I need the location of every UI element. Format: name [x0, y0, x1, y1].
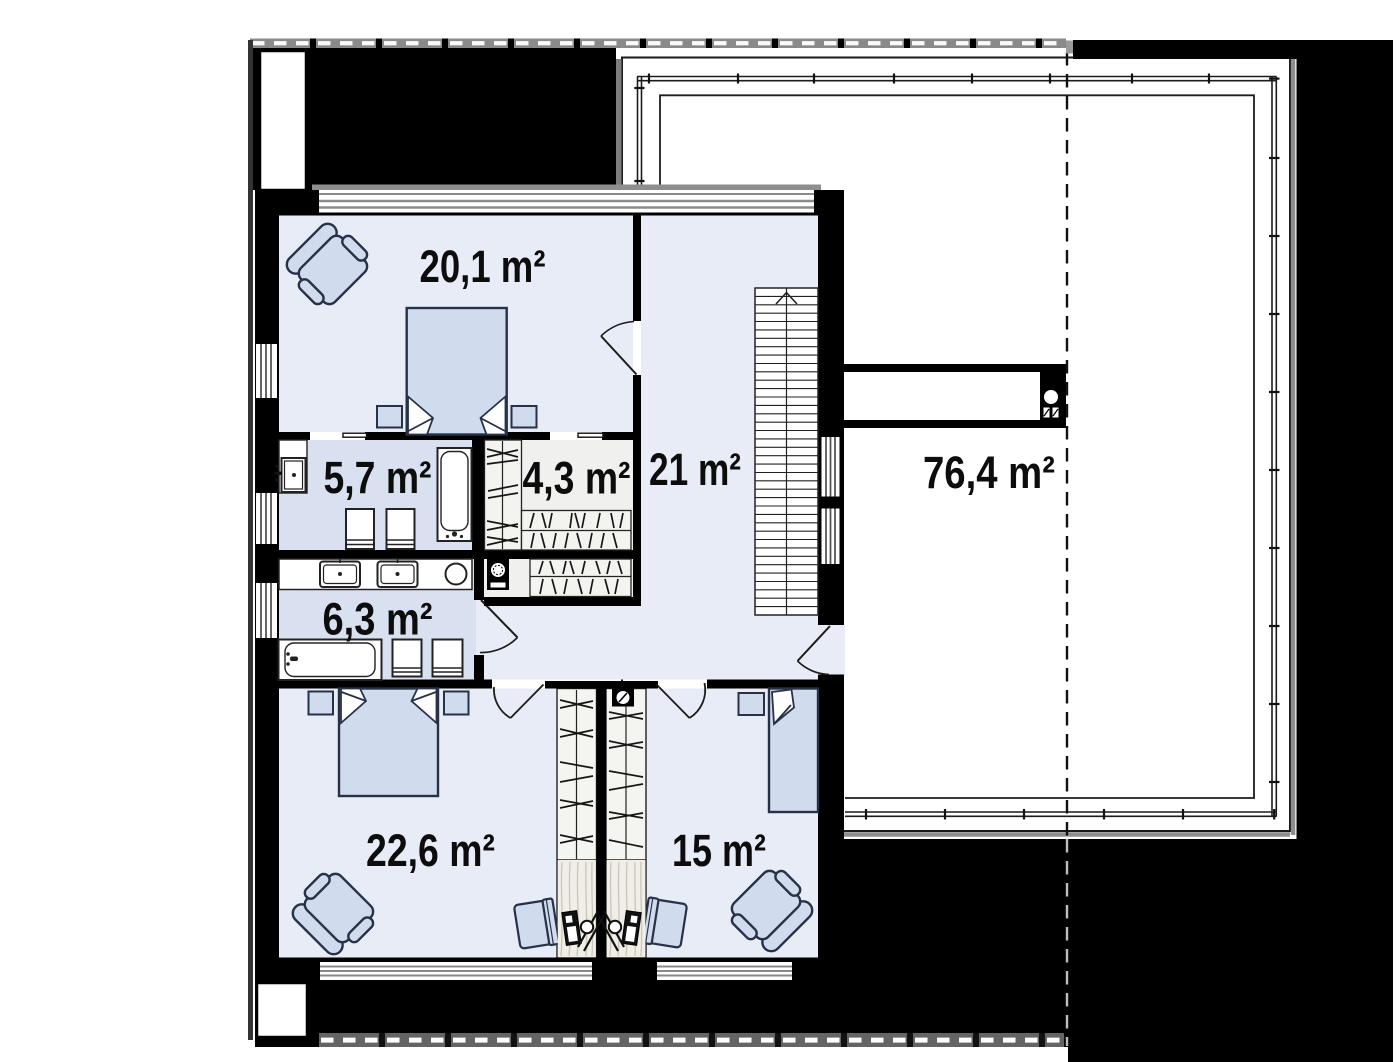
svg-text:22,6 m²: 22,6 m² [366, 825, 495, 876]
svg-text:76,4 m²: 76,4 m² [923, 447, 1055, 498]
svg-text:21 m²: 21 m² [649, 444, 741, 495]
svg-text:15 m²: 15 m² [672, 825, 766, 876]
svg-text:4,3 m²: 4,3 m² [523, 453, 631, 504]
svg-text:6,3 m²: 6,3 m² [323, 594, 433, 645]
svg-text:5,7 m²: 5,7 m² [324, 452, 432, 503]
svg-text:20,1 m²: 20,1 m² [420, 241, 546, 292]
